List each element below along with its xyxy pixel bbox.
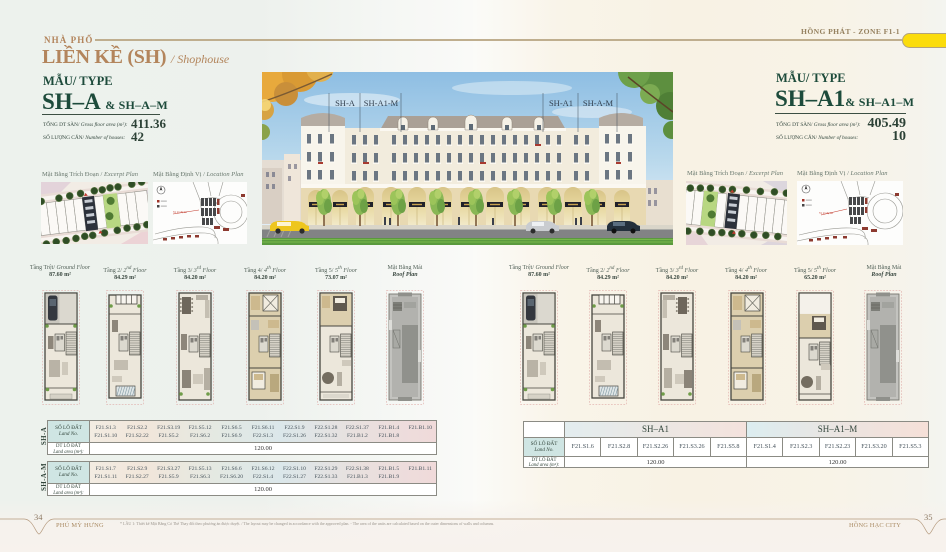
svg-text:SH-A1: SH-A1 (549, 98, 573, 108)
svg-text:SH-A1-M: SH-A1-M (364, 98, 399, 108)
svg-text:SH-A-M: SH-A-M (583, 98, 614, 108)
svg-text:SH-A: SH-A (335, 98, 356, 108)
svg-text:Vị trí dự án: Vị trí dự án (173, 210, 187, 214)
svg-text:Vị trí dự án: Vị trí dự án (819, 211, 833, 215)
